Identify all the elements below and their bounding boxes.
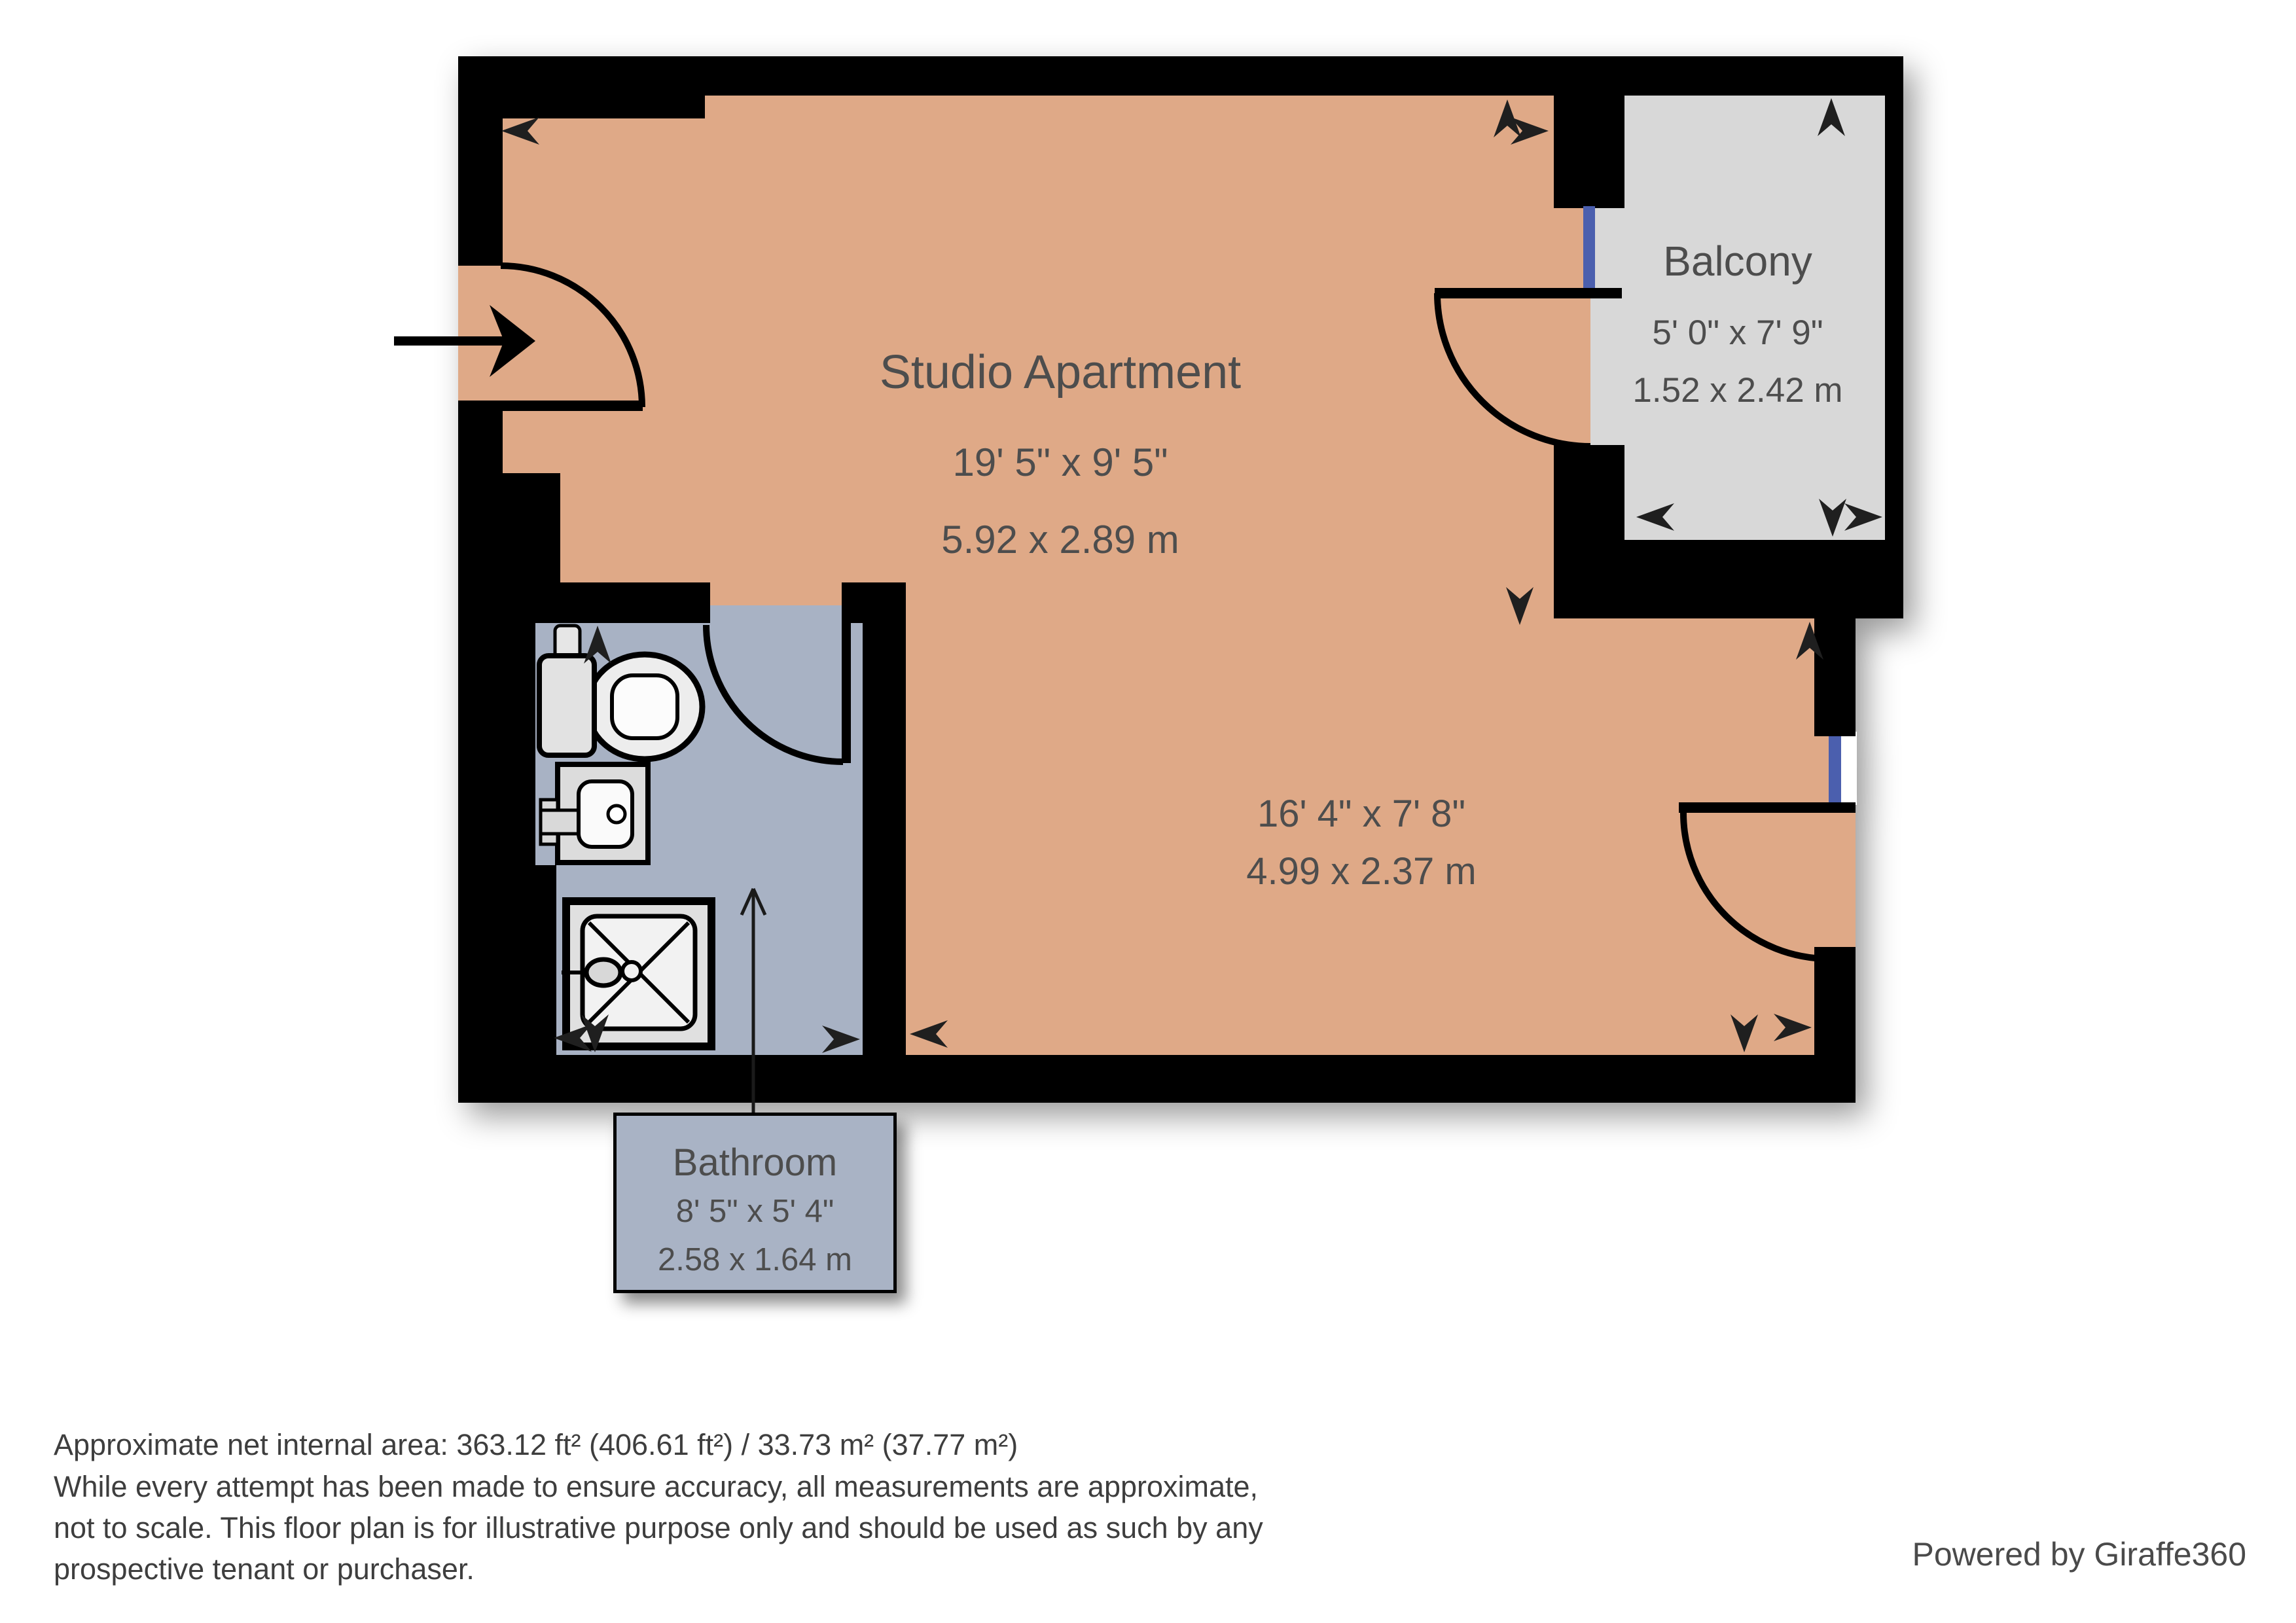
footer-disclaimer-line3: prospective tenant or purchaser. (54, 1552, 475, 1586)
floor-plan-page: Studio Apartment 19' 5" x 9' 5" 5.92 x 2… (0, 0, 2296, 1623)
balcony-window (1583, 206, 1595, 295)
bathroom-door-leaf (842, 623, 851, 763)
footer-area-text: Approximate net internal area: 363.12 ft… (54, 1428, 1018, 1462)
zone2-dims-metric: 4.99 x 2.37 m (1246, 849, 1476, 893)
studio-room-dims-imperial: 19' 5" x 9' 5" (952, 440, 1168, 485)
studio-room-label: Studio Apartment (880, 346, 1241, 399)
exterior-gap (1841, 732, 1857, 805)
footer-disclaimer-line2: not to scale. This floor plan is for ill… (54, 1511, 1263, 1545)
balcony-door-leaf (1435, 288, 1622, 298)
right-wall-window (1829, 736, 1841, 803)
studio-room-dims-metric: 5.92 x 2.89 m (941, 517, 1179, 562)
bathroom-dims-metric: 2.58 x 1.64 m (658, 1241, 852, 1278)
balcony-dims-imperial: 5' 0" x 7' 9" (1652, 313, 1823, 353)
zone2-dims-imperial: 16' 4" x 7' 8" (1257, 792, 1465, 836)
entrance-door-leaf (458, 401, 643, 411)
bathroom-room-label: Bathroom (673, 1141, 837, 1185)
bathroom-label-box: Bathroom 8' 5" x 5' 4" 2.58 x 1.64 m (613, 1113, 897, 1293)
terrace-door-leaf (1679, 802, 1856, 813)
balcony-room-label: Balcony (1663, 237, 1812, 285)
powered-by-branding: Powered by Giraffe360 (1912, 1535, 2247, 1573)
balcony-dims-metric: 1.52 x 2.42 m (1632, 370, 1842, 410)
floor-plan-drawing (0, 0, 2296, 1623)
sink-icon (541, 764, 648, 863)
footer-disclaimer-line1: While every attempt has been made to ens… (54, 1470, 1258, 1504)
shower-icon (562, 901, 711, 1046)
bathroom-dims-imperial: 8' 5" x 5' 4" (676, 1193, 834, 1230)
